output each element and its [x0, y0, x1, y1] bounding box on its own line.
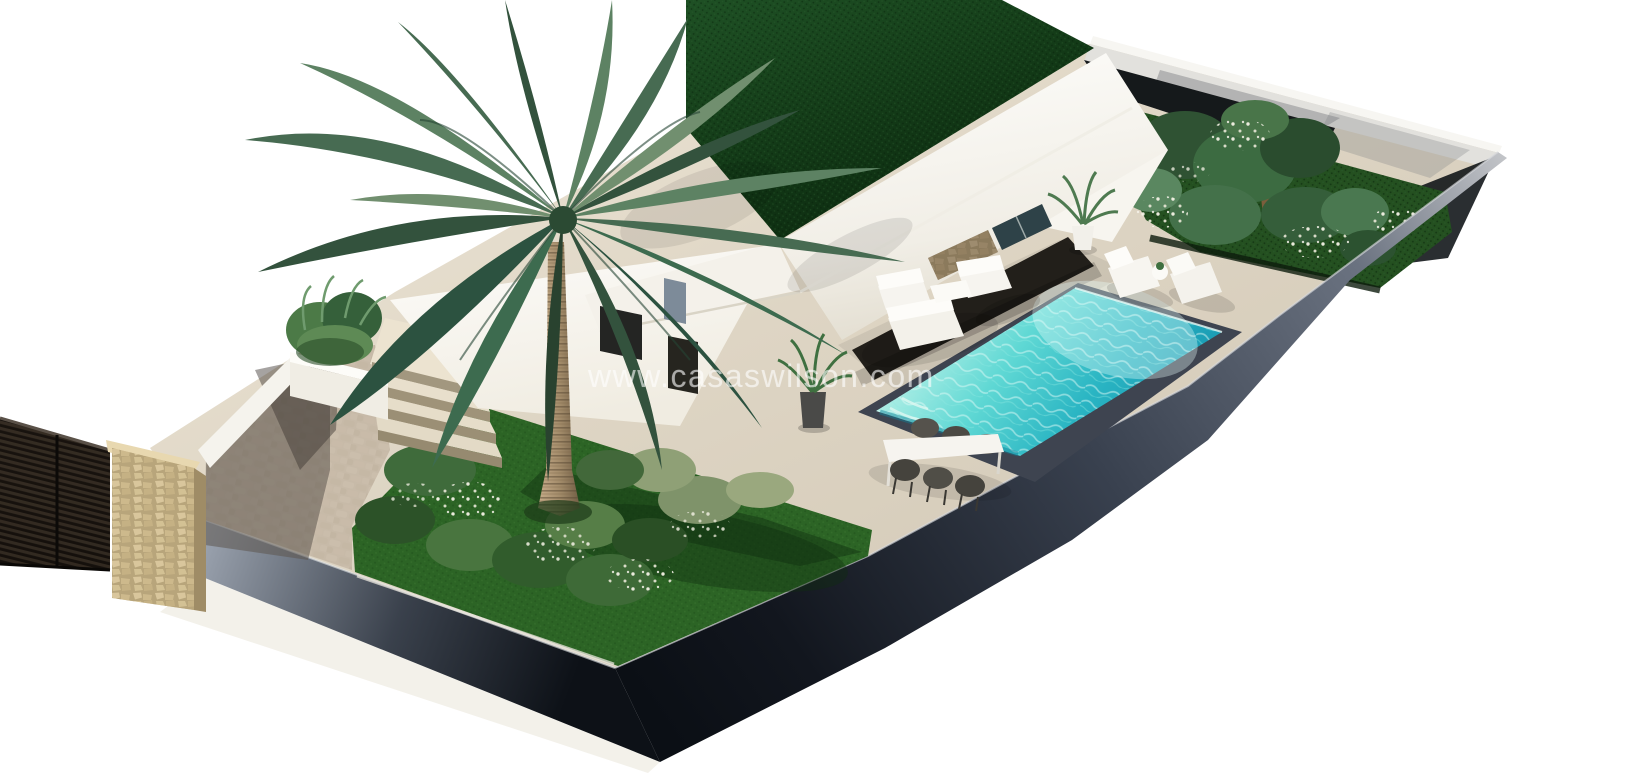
architectural-render: www.casaswilson.com — [0, 0, 1638, 773]
entry-gate — [0, 418, 110, 570]
trunk-base — [524, 500, 592, 524]
table-plant — [1156, 262, 1164, 270]
palm-crown — [549, 206, 577, 234]
render-scene — [0, 0, 1638, 773]
stone-pillar — [106, 440, 206, 612]
